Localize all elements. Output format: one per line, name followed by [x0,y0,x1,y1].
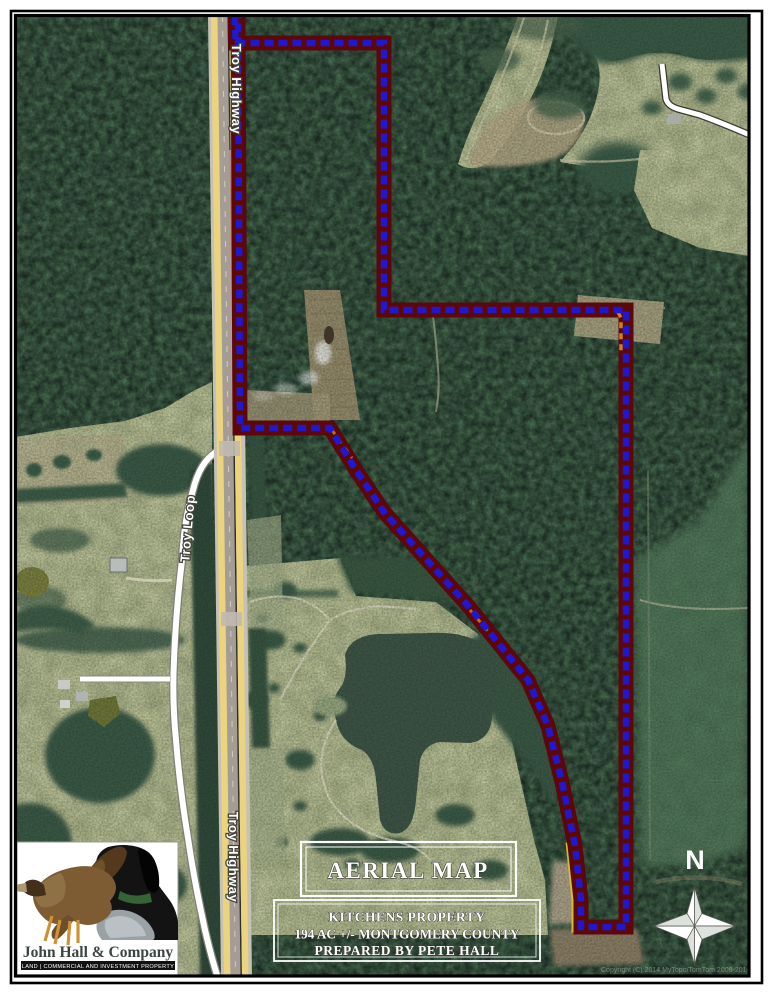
svg-text:Troy Highway: Troy Highway [226,812,241,903]
svg-text:AERIAL MAP: AERIAL MAP [327,858,488,883]
svg-text:John Hall & Company: John Hall & Company [23,944,174,961]
svg-text:194 AC +/- MONTGOMERY COUNTY: 194 AC +/- MONTGOMERY COUNTY [295,927,520,942]
svg-text:KITCHENS PROPERTY: KITCHENS PROPERTY [329,910,486,925]
svg-text:Copyright (C) 2014 MyTopo/TomT: Copyright (C) 2014 MyTopo/TomTom 2008-20… [601,967,768,974]
svg-text:LAND | COMMERCIAL AND INVESTME: LAND | COMMERCIAL AND INVESTMENT PROPERT… [22,964,174,970]
svg-text:PREPARED BY PETE HALL: PREPARED BY PETE HALL [315,943,500,958]
svg-text:Troy Highway: Troy Highway [229,44,244,135]
svg-text:N: N [685,845,705,875]
